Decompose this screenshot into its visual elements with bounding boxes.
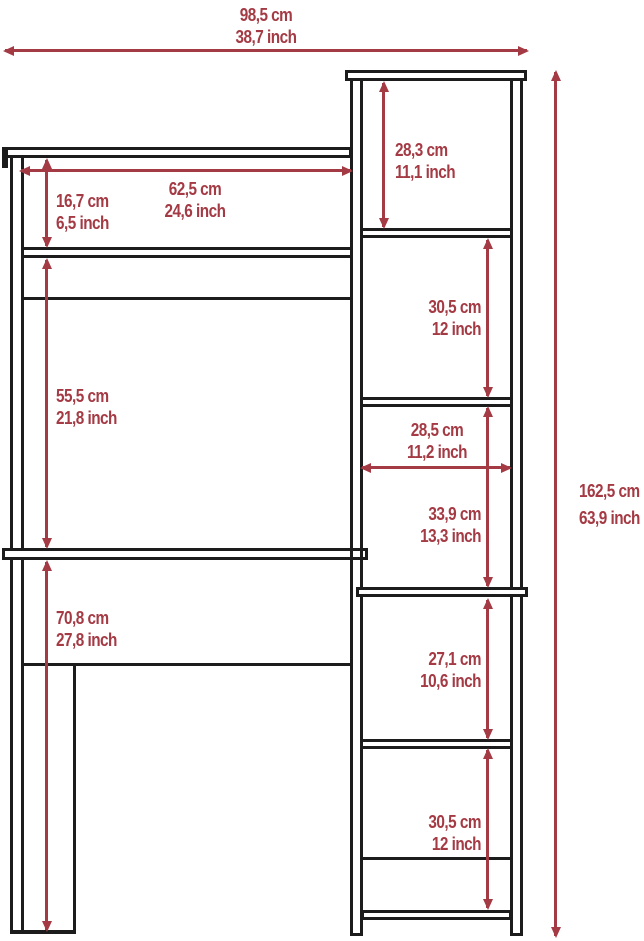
tower-right-outer-line (520, 81, 523, 936)
dim-arrow-tower-cubby5-height (486, 750, 489, 908)
dim-inch: 63,9 inch (579, 505, 640, 532)
left-side-panel-outer-line (10, 157, 13, 933)
dim-cm: 30,5 cm (396, 811, 481, 833)
dim-cm: 33,9 cm (396, 503, 481, 525)
dim-cm: 55,5 cm (56, 385, 117, 407)
dim-label-total-width: 98,5 cm 38,7 inch (181, 4, 351, 48)
dim-cm: 162,5 cm (579, 478, 640, 505)
dimension-diagram: 98,5 cm 38,7 inch 62,5 cm 24,6 inch 16,7… (0, 0, 644, 941)
hutch-rail-line (24, 297, 353, 300)
left-leg-inner-line (73, 666, 76, 933)
dim-cm: 30,5 cm (396, 296, 481, 318)
tower-top-panel (345, 70, 527, 81)
dim-label-tower-cubby3-height: 33,9 cm 13,3 inch (396, 503, 481, 547)
left-side-panel-inner-line (21, 157, 24, 933)
dim-label-tower-top-cubby-height: 28,3 cm 11,1 inch (395, 139, 455, 183)
dim-arrow-under-desk-clearance (45, 562, 48, 930)
dim-cm: 28,3 cm (395, 139, 455, 161)
tower-right-inner-line (510, 81, 513, 936)
dim-inch: 12 inch (396, 318, 481, 340)
hutch-shelf-top-line (24, 247, 353, 250)
desk-top-panel (2, 548, 368, 560)
tower-left-outer-line (350, 81, 353, 936)
tower-shelf3-panel (356, 587, 528, 597)
dim-arrow-hutch-opening-width (21, 169, 351, 172)
dim-arrow-shelf-to-desk-height (45, 260, 48, 547)
dim-inch: 6,5 inch (56, 212, 109, 234)
dim-cm: 16,7 cm (56, 190, 109, 212)
dim-inch: 11,2 inch (352, 441, 522, 463)
dim-cm: 62,5 cm (110, 178, 280, 200)
dim-inch: 12 inch (396, 833, 481, 855)
tower-bottom-board (361, 910, 512, 920)
dim-inch: 13,3 inch (396, 525, 481, 547)
dim-label-hutch-opening-width: 62,5 cm 24,6 inch (110, 178, 280, 222)
dim-label-tower-width: 28,5 cm 11,2 inch (352, 419, 522, 463)
dim-arrow-tower-top-cubby-height (382, 83, 385, 227)
dim-label-under-desk-clearance: 70,8 cm 27,8 inch (56, 607, 117, 651)
dim-cm: 28,5 cm (352, 419, 522, 441)
dim-cm: 98,5 cm (181, 4, 351, 26)
dim-arrow-total-width (5, 49, 527, 52)
dim-inch: 38,7 inch (181, 26, 351, 48)
dim-arrow-total-height (554, 72, 557, 936)
dim-inch: 24,6 inch (110, 200, 280, 222)
dim-cm: 70,8 cm (56, 607, 117, 629)
tower-right-leg-bottom-line (510, 933, 523, 936)
dim-label-tower-cubby2-height: 30,5 cm 12 inch (396, 296, 481, 340)
hutch-top-left-cap (2, 147, 8, 168)
dim-inch: 11,1 inch (395, 161, 455, 183)
dim-arrow-hutch-opening-height (45, 160, 48, 246)
dim-label-hutch-opening-height: 16,7 cm 6,5 inch (56, 190, 109, 234)
hutch-top-panel (2, 147, 352, 158)
dim-label-tower-cubby4-height: 27,1 cm 10,6 inch (396, 648, 481, 692)
dim-label-total-height: 162,5 cm 63,9 inch (579, 478, 640, 532)
dim-arrow-tower-cubby2-height (486, 240, 489, 396)
dim-inch: 21,8 inch (56, 407, 117, 429)
dim-inch: 27,8 inch (56, 629, 117, 651)
dim-cm: 27,1 cm (396, 648, 481, 670)
tower-left-inner-line (360, 81, 363, 936)
dim-inch: 10,6 inch (396, 670, 481, 692)
dim-label-shelf-to-desk-height: 55,5 cm 21,8 inch (56, 385, 117, 429)
dim-label-tower-cubby5-height: 30,5 cm 12 inch (396, 811, 481, 855)
tower-left-leg-bottom-line (350, 933, 363, 936)
dim-arrow-tower-cubby4-height (486, 600, 489, 738)
hutch-shelf-bottom-line (24, 255, 353, 258)
